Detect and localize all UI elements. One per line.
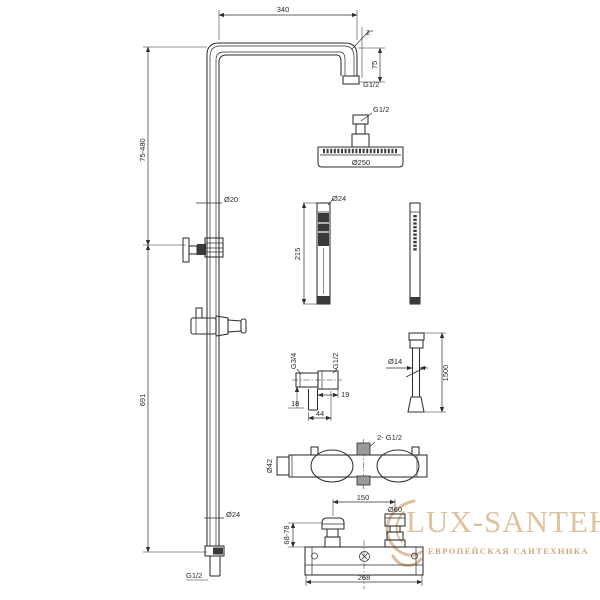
technical-drawing: 340 2° 75 G1/2 75-480 691 xyxy=(0,0,600,600)
dim-label-o60: Ø60 xyxy=(388,505,402,514)
wall-union-elbow: G3/4 G1/2 19 18 44 xyxy=(288,353,349,421)
dim-label-691: 691 xyxy=(138,394,147,407)
dim-label-g34: G3/4 xyxy=(289,353,298,369)
dim-label-18: 18 xyxy=(291,399,299,408)
head-thread-label: G1/2 xyxy=(373,105,389,114)
dim-label-75: 75 xyxy=(370,61,379,69)
wall-bracket xyxy=(183,238,223,262)
dimension-lower-column: 691 xyxy=(138,245,207,552)
mixer-top-view: 2- G1/2 Ø42 xyxy=(265,433,427,489)
dim-label-340: 340 xyxy=(277,5,290,14)
dim-label-union-g12: G1/2 xyxy=(331,353,340,369)
dim-label-19: 19 xyxy=(341,390,349,399)
hand-shower-side xyxy=(410,203,420,304)
dim-label-o24: Ø24 xyxy=(226,510,240,519)
bottom-thread-label: G1/2 xyxy=(186,571,202,580)
dimension-arm-width: 340 xyxy=(219,5,357,40)
hand-shower-front: Ø24 215 xyxy=(293,194,346,304)
dim-label-2-g12: 2- G1/2 xyxy=(377,433,402,442)
dim-label-1500: 1500 xyxy=(441,365,450,382)
dim-label-o14: Ø14 xyxy=(388,357,402,366)
dim-label-268: 268 xyxy=(358,573,371,582)
shower-column xyxy=(205,43,359,576)
dim-label-150: 150 xyxy=(357,493,370,502)
dim-label-o20: Ø20 xyxy=(224,195,238,204)
dim-label-68-78: 68-78 xyxy=(282,525,291,544)
dim-label-215: 215 xyxy=(293,248,302,261)
dim-label-hs-o24: Ø24 xyxy=(332,194,346,203)
dimension-column-diameter: Ø20 xyxy=(196,195,238,204)
dim-label-o42: Ø42 xyxy=(265,459,274,473)
mixer-front-view: 150 Ø60 xyxy=(282,493,423,589)
shower-hose: Ø14 1500 xyxy=(386,333,450,412)
dim-label-2deg: 2° xyxy=(366,28,373,37)
dimension-upper-column: 75-480 xyxy=(138,47,207,245)
dim-label-44: 44 xyxy=(316,409,324,418)
dim-label-75-480: 75-480 xyxy=(138,138,147,161)
dimension-arm-angle: 2° xyxy=(352,27,373,78)
dim-label-o250: Ø250 xyxy=(352,158,370,167)
label-bottom-thread: G1/2 xyxy=(186,571,208,580)
arm-thread-label: G1/2 xyxy=(363,80,379,89)
overhead-shower: G1/2 Ø250 xyxy=(318,105,403,167)
label-arm-thread: G1/2 xyxy=(363,80,379,89)
shower-system-technical-drawing: LUX-SANTEH ЕВРОПЕЙСКАЯ САНТЕХНИКА xyxy=(0,0,600,600)
dimension-bottom-diameter: Ø24 xyxy=(204,510,240,519)
